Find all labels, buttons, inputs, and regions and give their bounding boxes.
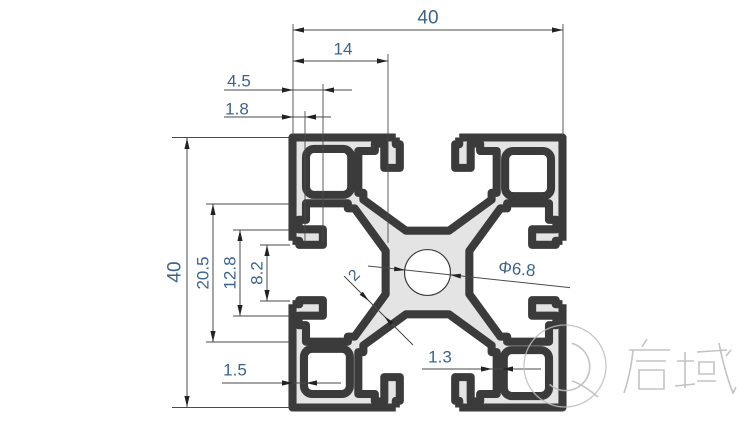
dim-lip-depth-label: 4.5 (227, 73, 251, 90)
dim-inner-wall-label: 1.3 (428, 349, 452, 366)
technical-drawing (0, 0, 751, 428)
dim-side-height-label: 40 (166, 261, 185, 282)
dim-cavity-span-label: 20.5 (195, 256, 212, 289)
watermark-cjk-strokes (624, 339, 736, 393)
drawing-canvas: 40 14 4.5 1.8 40 20.5 12.8 8.2 1.5 1.3 Φ… (0, 0, 751, 428)
dim-outer-wall-label: 1.5 (223, 362, 247, 379)
dim-top-width-label: 40 (417, 9, 438, 28)
dim-slot-opening-label: 8.2 (249, 261, 266, 285)
dim-center-hole-label: Φ6.8 (498, 259, 537, 280)
dim-lip-thickness-label: 1.8 (225, 101, 249, 118)
dim-slot-position-label: 14 (334, 41, 353, 58)
dim-wing-width-label: 12.8 (222, 256, 239, 289)
